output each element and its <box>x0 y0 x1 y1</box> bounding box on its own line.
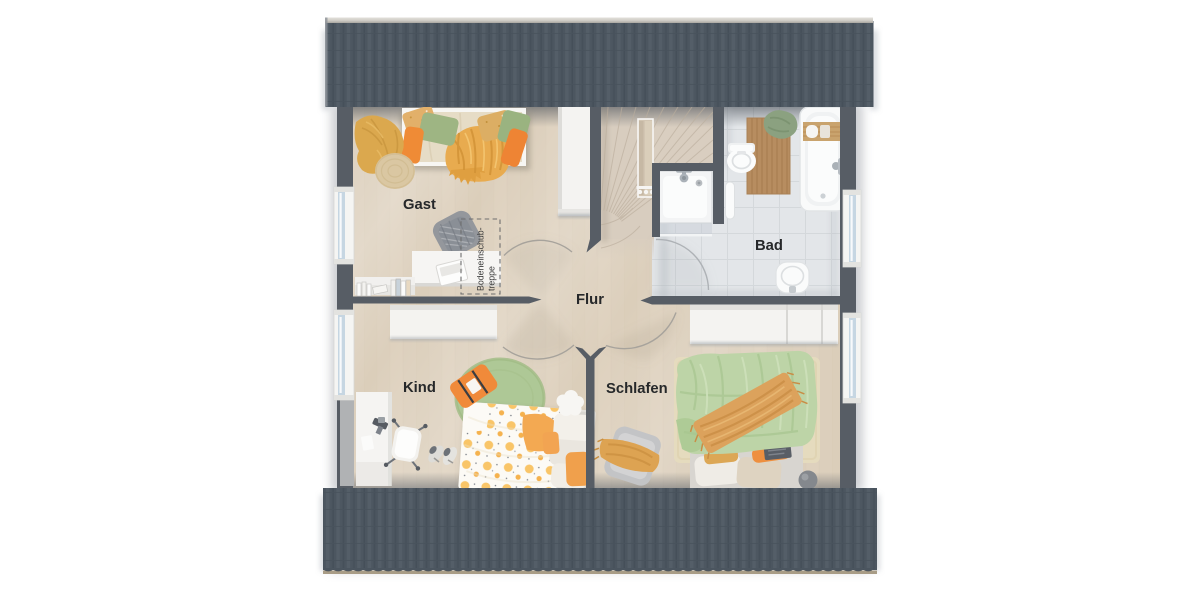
svg-text:treppe: treppe <box>487 266 497 291</box>
svg-text:Gast: Gast <box>403 197 436 213</box>
svg-text:Bodeneinschub-: Bodeneinschub- <box>476 227 486 291</box>
svg-text:Schlafen: Schlafen <box>606 381 668 397</box>
svg-text:Bad: Bad <box>755 238 783 254</box>
svg-text:Kind: Kind <box>403 380 436 396</box>
svg-text:Flur: Flur <box>576 292 604 308</box>
